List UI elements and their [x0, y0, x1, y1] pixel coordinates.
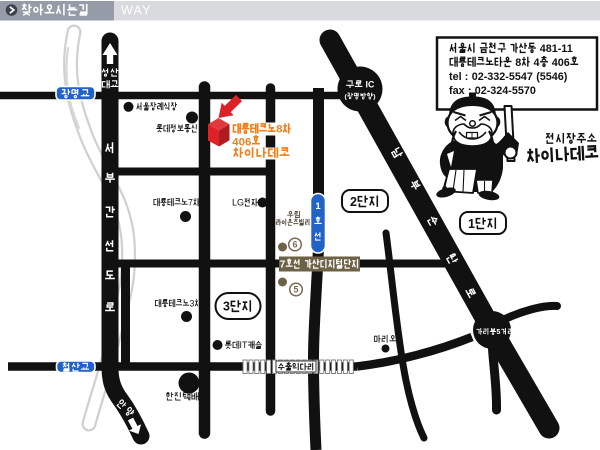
- svg-text:8: 8: [276, 124, 282, 136]
- svg-text:02-332-5547: 02-332-5547: [472, 71, 533, 83]
- svg-text:5: 5: [293, 285, 298, 295]
- svg-text:02-324-5570: 02-324-5570: [475, 85, 536, 97]
- svg-text:3: 3: [223, 300, 230, 314]
- svg-text:5: 5: [496, 327, 500, 336]
- svg-text:406: 406: [552, 57, 570, 69]
- svg-text:6: 6: [292, 240, 297, 250]
- svg-text:1: 1: [468, 217, 475, 231]
- svg-text:406: 406: [232, 136, 251, 148]
- svg-text:): ): [373, 93, 375, 100]
- svg-text:3: 3: [190, 298, 195, 308]
- svg-text:tel: tel: [449, 71, 462, 83]
- svg-text::: :: [465, 71, 469, 83]
- svg-text:fax: fax: [449, 85, 465, 97]
- svg-text:1: 1: [315, 201, 321, 212]
- svg-text:WAY: WAY: [121, 4, 152, 18]
- svg-text:LG: LG: [232, 198, 244, 208]
- svg-text:4: 4: [534, 57, 540, 69]
- svg-text:IC: IC: [366, 80, 375, 90]
- svg-text:(5546): (5546): [536, 71, 568, 83]
- svg-text:7: 7: [280, 260, 286, 271]
- svg-text:2: 2: [350, 195, 357, 209]
- svg-text:8: 8: [515, 57, 521, 69]
- svg-text:IT: IT: [240, 340, 248, 350]
- svg-text:481-11: 481-11: [540, 43, 573, 55]
- svg-text:7: 7: [188, 197, 193, 207]
